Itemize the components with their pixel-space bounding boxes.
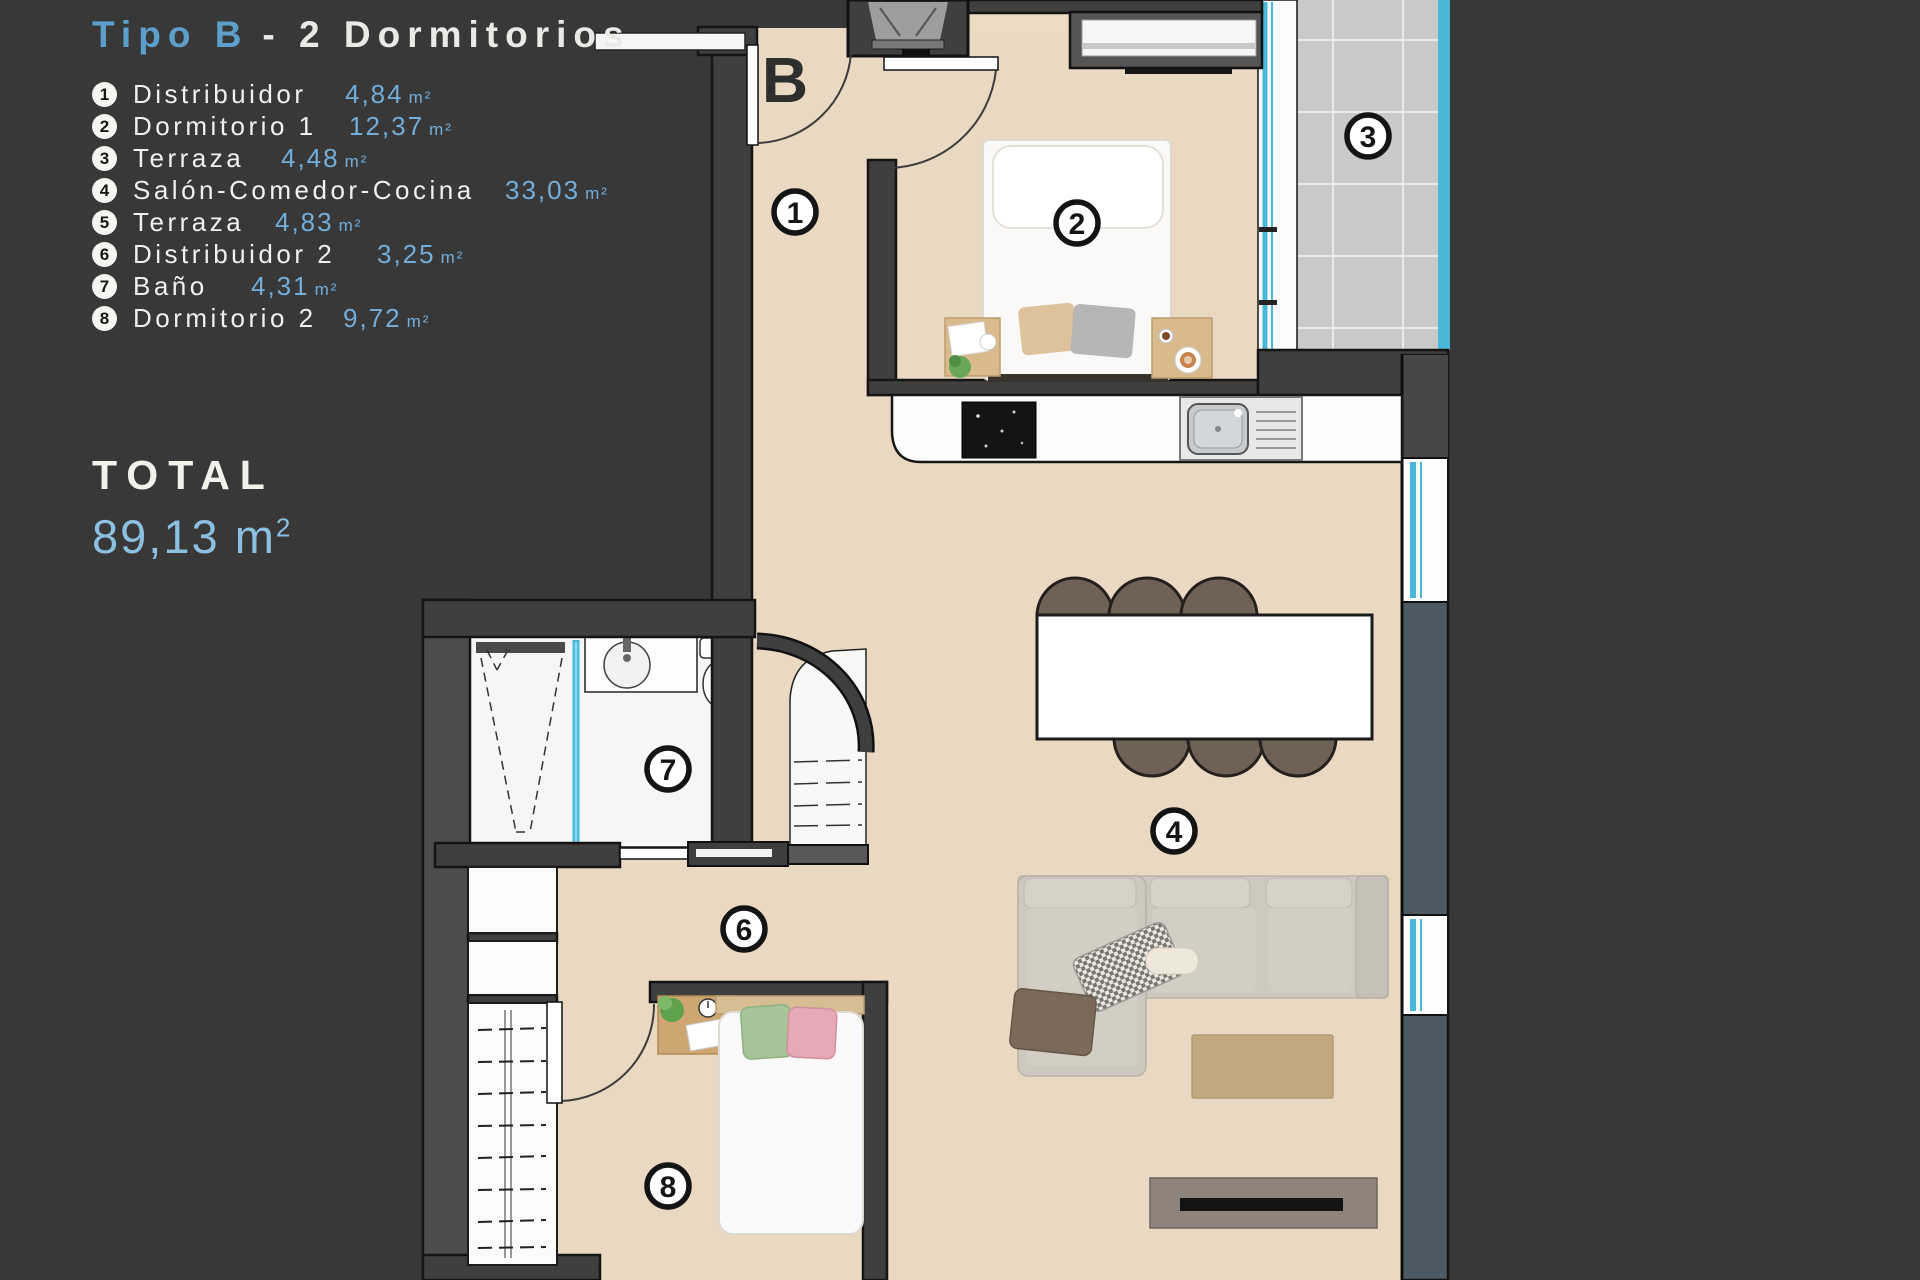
- terrace-tiles: [1297, 0, 1450, 350]
- legend-item: 4 Salón-Comedor-Cocina 33,03m²: [92, 177, 631, 204]
- pillow-green: [740, 1004, 794, 1059]
- title-rest: - 2 Dormitorios: [262, 14, 630, 55]
- pillow-pink: [787, 1007, 838, 1059]
- room-marker-2: 2: [1056, 202, 1098, 244]
- area-value: 4,48: [281, 143, 340, 174]
- legend-room-label: Dormitorio 1: [133, 111, 349, 142]
- legend-room-area: 12,37m²: [349, 111, 453, 142]
- legend-room-label: Terraza: [133, 207, 275, 238]
- legend-room-area: 9,72m²: [343, 303, 430, 334]
- area-value: 4,84: [345, 79, 404, 110]
- svg-text:3: 3: [1360, 121, 1377, 154]
- bedroom2-right-wall: [863, 982, 887, 1280]
- total-number: 89,13: [92, 510, 220, 563]
- floorplan-page: Tipo B- 2 Dormitorios 1 Distribuidor 4,8…: [0, 0, 1920, 1280]
- bedroom1-furniture: [945, 140, 1212, 381]
- area-unit: m²: [407, 312, 431, 332]
- area-unit: m²: [441, 248, 465, 268]
- area-value: 4,83: [275, 207, 334, 238]
- svg-text:1: 1: [787, 197, 804, 230]
- washbasin: [585, 637, 697, 692]
- room-number-badge: 6: [92, 242, 117, 267]
- area-value: 3,25: [377, 239, 436, 270]
- right-wall: [1402, 355, 1448, 1280]
- shower-bar: [476, 642, 565, 653]
- nightstand-left: [945, 318, 1000, 378]
- nightstand-right: [1152, 318, 1212, 378]
- svg-text:7: 7: [660, 754, 677, 787]
- cushion-gray: [1070, 303, 1136, 358]
- room-number-badge: 5: [92, 210, 117, 235]
- block-label: B: [762, 44, 808, 116]
- window: [1402, 915, 1448, 1015]
- room-number-badge: 8: [92, 306, 117, 331]
- room-marker-3: 3: [1347, 115, 1389, 157]
- rug: [1192, 1035, 1333, 1098]
- bedroom1-bottom-wall: [868, 380, 1258, 395]
- legend-item: 7 Baño 4,31m²: [92, 273, 631, 300]
- tv-bench: [1150, 1178, 1377, 1228]
- bathroom-top-wall: [423, 600, 755, 637]
- svg-text:8: 8: [660, 1171, 677, 1204]
- area-unit: m²: [429, 120, 453, 140]
- bathroom: [468, 635, 740, 847]
- hall-closets: [468, 867, 557, 1265]
- outer-left-wall: [423, 600, 470, 1280]
- title-type: Tipo B: [92, 14, 248, 55]
- legend-item: 5 Terraza 4,83m²: [92, 209, 631, 236]
- bedroom1-left-wall: [868, 160, 896, 395]
- area-value: 9,72: [343, 303, 402, 334]
- area-unit: m²: [409, 88, 433, 108]
- legend-room-label: Distribuidor 2: [133, 239, 377, 270]
- legend-room-area: 33,03m²: [505, 175, 609, 206]
- area-unit: m²: [345, 152, 369, 172]
- pillow-brown: [1009, 988, 1097, 1056]
- room-number-badge: 3: [92, 146, 117, 171]
- legend-items: 1 Distribuidor 4,84m² 2 Dormitorio 1 12,…: [92, 81, 631, 332]
- room-marker-8: 8: [647, 1165, 689, 1207]
- kitchen-sink: [1180, 397, 1302, 460]
- area-unit: m²: [339, 216, 363, 236]
- legend-item: 3 Terraza 4,48m²: [92, 145, 631, 172]
- dining-table: [1037, 615, 1372, 739]
- legend-room-area: 3,25m²: [377, 239, 464, 270]
- room-number-badge: 7: [92, 274, 117, 299]
- legend-item: 6 Distribuidor 2 3,25m²: [92, 241, 631, 268]
- legend-room-label: Salón-Comedor-Cocina: [133, 175, 505, 206]
- room-marker-4: 4: [1153, 810, 1195, 852]
- terrace-window: [1258, 0, 1297, 382]
- room-marker-6: 6: [723, 908, 765, 950]
- legend-room-area: 4,48m²: [281, 143, 368, 174]
- window: [1402, 458, 1448, 602]
- legend-item: 1 Distribuidor 4,84m²: [92, 81, 631, 108]
- terrace-glass-railing: [1438, 0, 1450, 350]
- cooktop: [962, 402, 1036, 458]
- legend-panel: Tipo B- 2 Dormitorios 1 Distribuidor 4,8…: [92, 14, 631, 337]
- room-number-badge: 1: [92, 82, 117, 107]
- bedroom2-wardrobe: [468, 1003, 557, 1265]
- total-unit: m2: [235, 510, 293, 563]
- area-unit: m²: [585, 184, 609, 204]
- page-title: Tipo B- 2 Dormitorios: [92, 14, 631, 56]
- legend-item: 2 Dormitorio 1 12,37m²: [92, 113, 631, 140]
- area-value: 12,37: [349, 111, 424, 142]
- total-area-block: TOTAL 89,13 m2: [92, 452, 292, 564]
- room-marker-1: 1: [774, 191, 816, 233]
- pillow-cream: [1146, 948, 1198, 974]
- cushion-beige: [1018, 302, 1079, 356]
- room-number-badge: 2: [92, 114, 117, 139]
- legend-room-area: 4,83m²: [275, 207, 362, 238]
- legend-room-label: Dormitorio 2: [133, 303, 343, 334]
- legend-room-label: Terraza: [133, 143, 281, 174]
- legend-room-label: Distribuidor: [133, 79, 345, 110]
- room-number-badge: 4: [92, 178, 117, 203]
- legend-item: 8 Dormitorio 2 9,72m²: [92, 305, 631, 332]
- kitchen: [892, 395, 1402, 462]
- svg-text:6: 6: [736, 914, 753, 947]
- bedroom1-wardrobe: [1070, 12, 1262, 74]
- legend-room-area: 4,31m²: [251, 271, 338, 302]
- area-value: 4,31: [251, 271, 310, 302]
- legend-room-area: 4,84m²: [345, 79, 432, 110]
- svg-text:2: 2: [1069, 208, 1086, 241]
- bathroom-south-wall: [435, 843, 620, 867]
- svg-text:4: 4: [1166, 816, 1183, 849]
- tv: [1180, 1198, 1343, 1211]
- room-marker-7: 7: [647, 748, 689, 790]
- area-unit: m²: [315, 280, 339, 300]
- total-value: 89,13 m2: [92, 509, 292, 564]
- legend-room-label: Baño: [133, 271, 251, 302]
- total-label: TOTAL: [92, 452, 292, 499]
- headboard: [988, 374, 1168, 381]
- corridor-wall: [712, 27, 752, 847]
- area-value: 33,03: [505, 175, 580, 206]
